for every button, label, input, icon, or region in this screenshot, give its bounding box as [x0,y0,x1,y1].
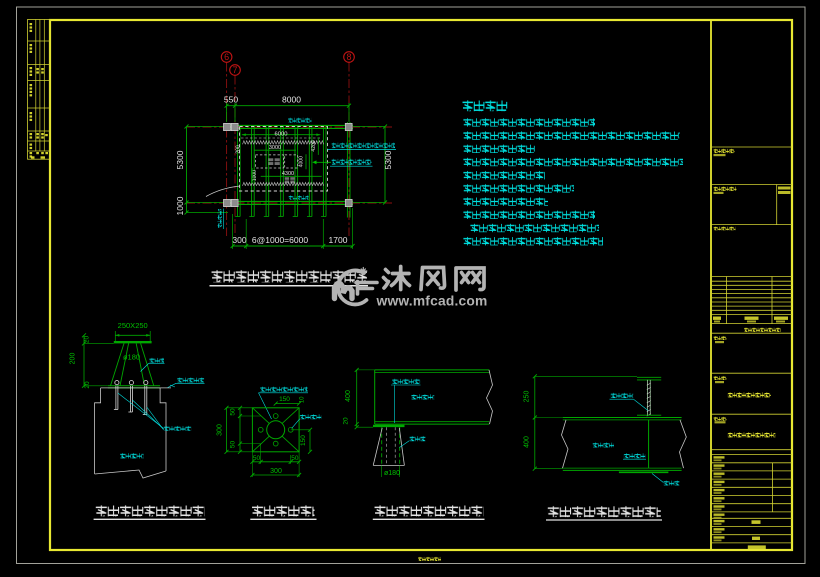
svg-text:1000: 1000 [175,196,185,215]
svg-text:6@1000=6000: 6@1000=6000 [252,235,308,245]
svg-text:300: 300 [232,235,246,245]
svg-text:4200: 4200 [311,140,317,151]
svg-text:5300: 5300 [175,150,185,169]
svg-text:6: 6 [224,52,229,62]
svg-text:300: 300 [270,468,282,475]
svg-text:20: 20 [343,417,350,425]
svg-text:550: 550 [224,95,238,105]
svg-text:1000: 1000 [252,170,258,181]
svg-text:20: 20 [84,381,91,389]
svg-text:20: 20 [84,336,91,344]
svg-text:6000: 6000 [275,131,288,137]
svg-text:5300: 5300 [383,150,393,169]
svg-text:8000: 8000 [282,95,301,105]
svg-text:4300: 4300 [282,171,294,177]
svg-text:200: 200 [70,353,77,365]
svg-text:3000: 3000 [269,145,281,151]
svg-text:300: 300 [216,424,223,436]
svg-text:400: 400 [524,436,531,448]
svg-text:50: 50 [230,441,237,449]
svg-text:8: 8 [346,52,351,62]
svg-text:1700: 1700 [329,235,348,245]
svg-text:50: 50 [230,408,237,416]
svg-text:50: 50 [253,455,261,462]
svg-text:200: 200 [235,145,241,154]
svg-text:150: 150 [300,435,307,446]
svg-text:250X250: 250X250 [118,321,148,330]
svg-text:ø180: ø180 [384,470,400,477]
svg-text:ø180: ø180 [123,353,140,362]
svg-text:50: 50 [291,455,299,462]
svg-text:400: 400 [345,390,352,402]
svg-text:250: 250 [524,391,531,403]
svg-text:10: 10 [300,396,306,403]
svg-text:7: 7 [232,65,237,75]
svg-text:4000: 4000 [299,156,305,167]
svg-text:www.mfcad.com: www.mfcad.com [376,294,488,309]
svg-text:150: 150 [279,396,290,403]
